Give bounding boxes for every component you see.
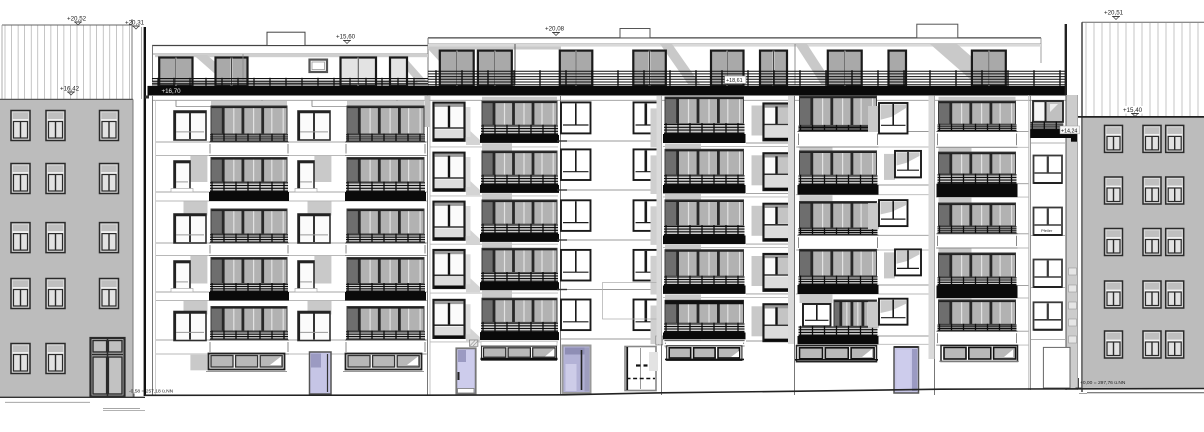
svg-text:+14,24: +14,24 xyxy=(1061,128,1077,134)
svg-text:+18,61: +18,61 xyxy=(726,78,743,84)
svg-text:+16,42: +16,42 xyxy=(60,86,80,93)
svg-text:+15,40: +15,40 xyxy=(1123,107,1143,114)
svg-text:+15,60: +15,60 xyxy=(336,34,356,41)
svg-text:+16,70: +16,70 xyxy=(162,88,182,95)
svg-text:+20,52: +20,52 xyxy=(67,16,87,23)
svg-text:+20,51: +20,51 xyxy=(1104,10,1124,17)
svg-text:+20,08: +20,08 xyxy=(545,26,565,33)
svg-text:+0,00 = 297,76 ü.NN: +0,00 = 297,76 ü.NN xyxy=(1080,380,1126,386)
svg-text:-0,58 = 257,18 ü.NN: -0,58 = 257,18 ü.NN xyxy=(129,389,174,395)
svg-text:+20,31: +20,31 xyxy=(125,20,145,27)
svg-text:Pfeiler: Pfeiler xyxy=(1041,228,1053,233)
